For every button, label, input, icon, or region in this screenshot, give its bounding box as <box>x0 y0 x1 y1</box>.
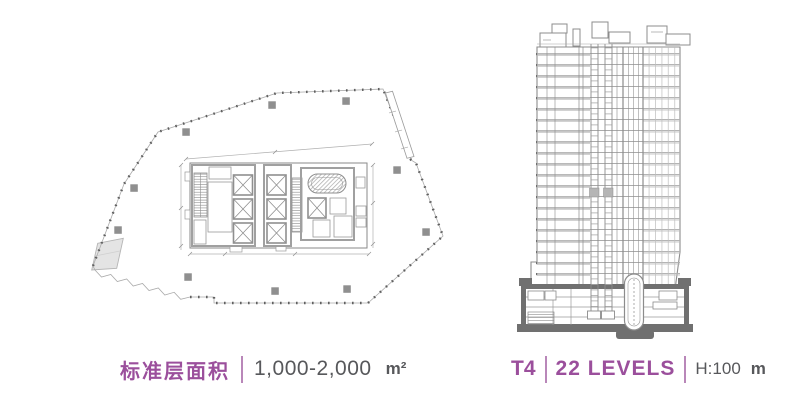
floor-area-value: 1,000-2,000 <box>254 357 372 381</box>
tower-height-label: H:100 <box>695 359 740 379</box>
tower-elevation-drawing <box>495 20 725 345</box>
floor-plan-drawing <box>80 80 460 315</box>
floor-plan-caption: 标准层面积 1,000-2,000 m² <box>120 351 406 387</box>
brochure-page: 标准层面积 1,000-2,000 m² T4 22 LEVELS H:100 … <box>0 0 800 400</box>
floor-area-label: 标准层面积 <box>120 355 230 384</box>
podium-center-bump <box>616 330 654 339</box>
elevator-bank-a <box>234 175 253 243</box>
rooftop-equipment <box>540 22 690 47</box>
tower-caption: T4 22 LEVELS H:100 m <box>511 351 766 387</box>
floor-area-unit: m² <box>386 359 407 379</box>
plan-core <box>185 163 367 252</box>
caption-divider <box>684 356 686 383</box>
tower-id-label: T4 <box>511 357 536 381</box>
tower-levels-label: 22 LEVELS <box>556 357 676 381</box>
shuttle-capsule <box>625 274 644 330</box>
escalator-loop <box>308 174 346 193</box>
elevator-bank-c <box>308 198 326 218</box>
caption-divider <box>545 356 547 383</box>
plan-ramp <box>92 238 124 270</box>
tower-height-unit: m <box>751 359 766 379</box>
caption-divider <box>241 356 243 383</box>
